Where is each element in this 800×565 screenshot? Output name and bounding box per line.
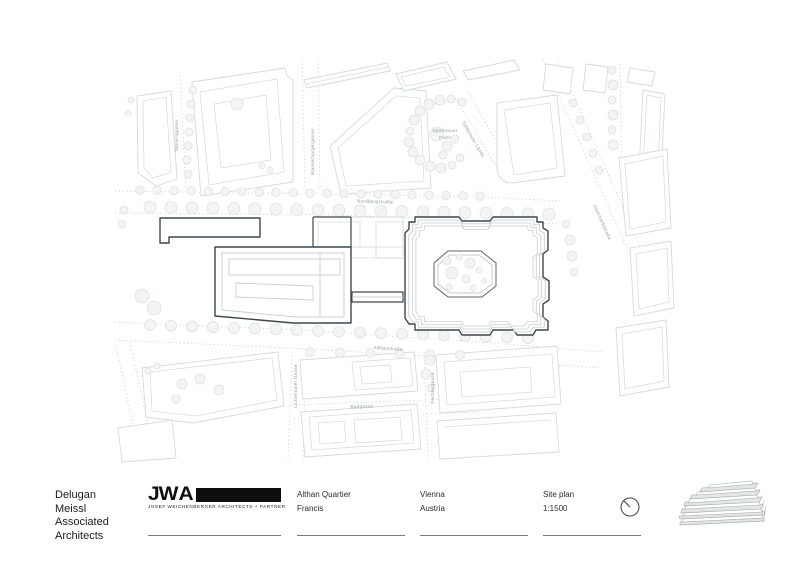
street-label-tepserngasse: Tepserngasse (174, 120, 180, 152)
street-label-althanstrasse: Althanstraße (373, 345, 403, 353)
jwa-logo-bar (196, 488, 281, 502)
project-buildings (160, 217, 549, 335)
street-label-alserbachstrasse: Alserbachstraße (591, 204, 612, 241)
street-label-nordbergstrasse: Nordbergstraße (357, 199, 394, 206)
project-building-bar (160, 218, 260, 243)
location-city: Vienna (420, 488, 445, 502)
street-label-spittelauer-laende: Spittelauer Lände (460, 120, 486, 159)
architect-line: Associated (55, 516, 109, 530)
drawing-info: Site plan 1:1500 (543, 488, 574, 516)
architect-line: Delugan (55, 489, 109, 503)
architect-line: Architects (55, 530, 109, 544)
drawing-title: Site plan (543, 488, 574, 502)
street-label-wasserburgergasse: Wasserburgergasse (310, 129, 316, 175)
location-info: Vienna Austria (420, 488, 445, 516)
architect-line: Meissl (55, 503, 109, 517)
street-label-lichtentaler-gasse: Lichtentaler Gasse (293, 364, 299, 408)
title-block-rule (148, 535, 281, 536)
jwa-logo-jw: JW (148, 486, 178, 502)
architect-name-block: Delugan Meissl Associated Architects (55, 489, 109, 543)
location-country: Austria (420, 502, 445, 516)
context-buildings (118, 60, 674, 462)
drawing-scale: 1:1500 (543, 502, 574, 516)
project-name: Althan Quartier (297, 488, 351, 502)
place-label-spittelauer-platz-line2: Platz (439, 135, 451, 141)
title-block-rule (420, 535, 528, 536)
title-block-rule (297, 535, 405, 536)
street-label-fechtergasse: Fechtergasse (430, 372, 436, 404)
building-sketch (672, 476, 772, 531)
north-indicator-icon (618, 495, 642, 519)
street-label-badgasse: Badgasse (350, 404, 373, 411)
jwa-logo-letters: JW A (148, 485, 281, 502)
courtyard-octagon (434, 251, 496, 297)
project-subname: Francis (297, 502, 351, 516)
jwa-logo-a: A (179, 486, 194, 502)
project-info: Althan Quartier Francis (297, 488, 351, 516)
site-plan-map: Nordbergstraße Althanstraße Badgasse Spi… (0, 0, 800, 475)
jwa-logo: JW A JOSEF WEICHENBERGER ARCHITECTS + PA… (148, 485, 281, 509)
place-label-spittelauer-platz-line1: Spittelauer (432, 128, 457, 134)
drawing-sheet: Nordbergstraße Althanstraße Badgasse Spi… (0, 0, 800, 565)
title-block-rule (543, 535, 641, 536)
